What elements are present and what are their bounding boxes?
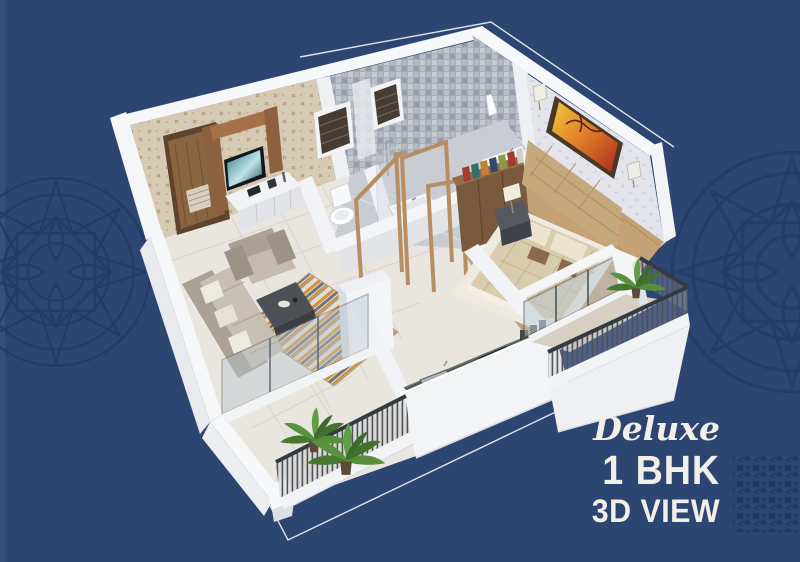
title-block: Deluxe 1 BHK 3D VIEW xyxy=(585,412,720,529)
poster-canvas: Deluxe 1 BHK 3D VIEW xyxy=(0,0,800,562)
title-main: 1 BHK xyxy=(596,450,720,492)
table-decor xyxy=(278,301,290,308)
title-script: Deluxe xyxy=(585,412,720,447)
title-sub: 3D VIEW xyxy=(592,495,720,529)
corner-ornament xyxy=(733,455,800,532)
